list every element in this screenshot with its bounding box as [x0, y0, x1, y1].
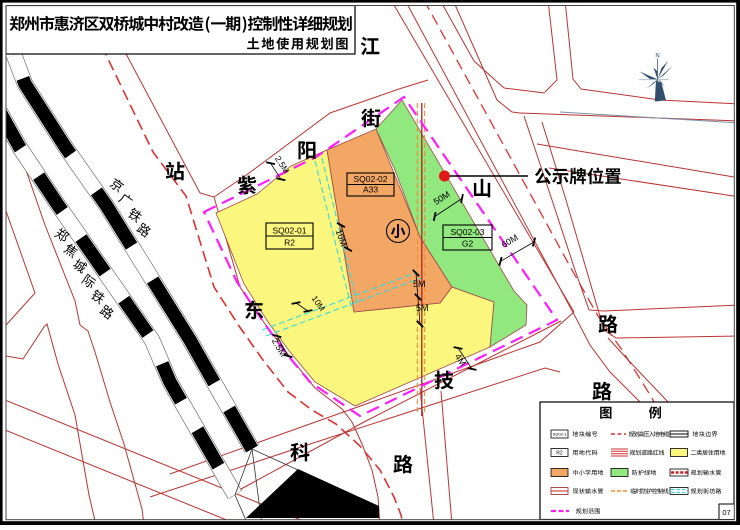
svg-text:A33: A33: [363, 185, 378, 195]
svg-text:N: N: [655, 54, 659, 60]
svg-text:SQ02-03: SQ02-03: [450, 227, 484, 237]
svg-text:07: 07: [722, 508, 730, 517]
svg-text:G2: G2: [462, 239, 474, 249]
svg-text:SQ02-02: SQ02-02: [353, 174, 387, 184]
svg-text:5M: 5M: [416, 303, 429, 313]
svg-text:5M: 5M: [413, 279, 426, 289]
svg-text:R2: R2: [556, 451, 563, 457]
svg-text:SQ02-01: SQ02-01: [272, 226, 306, 236]
svg-text:R2: R2: [284, 238, 295, 248]
svg-text:SQ02-1: SQ02-1: [553, 432, 568, 437]
